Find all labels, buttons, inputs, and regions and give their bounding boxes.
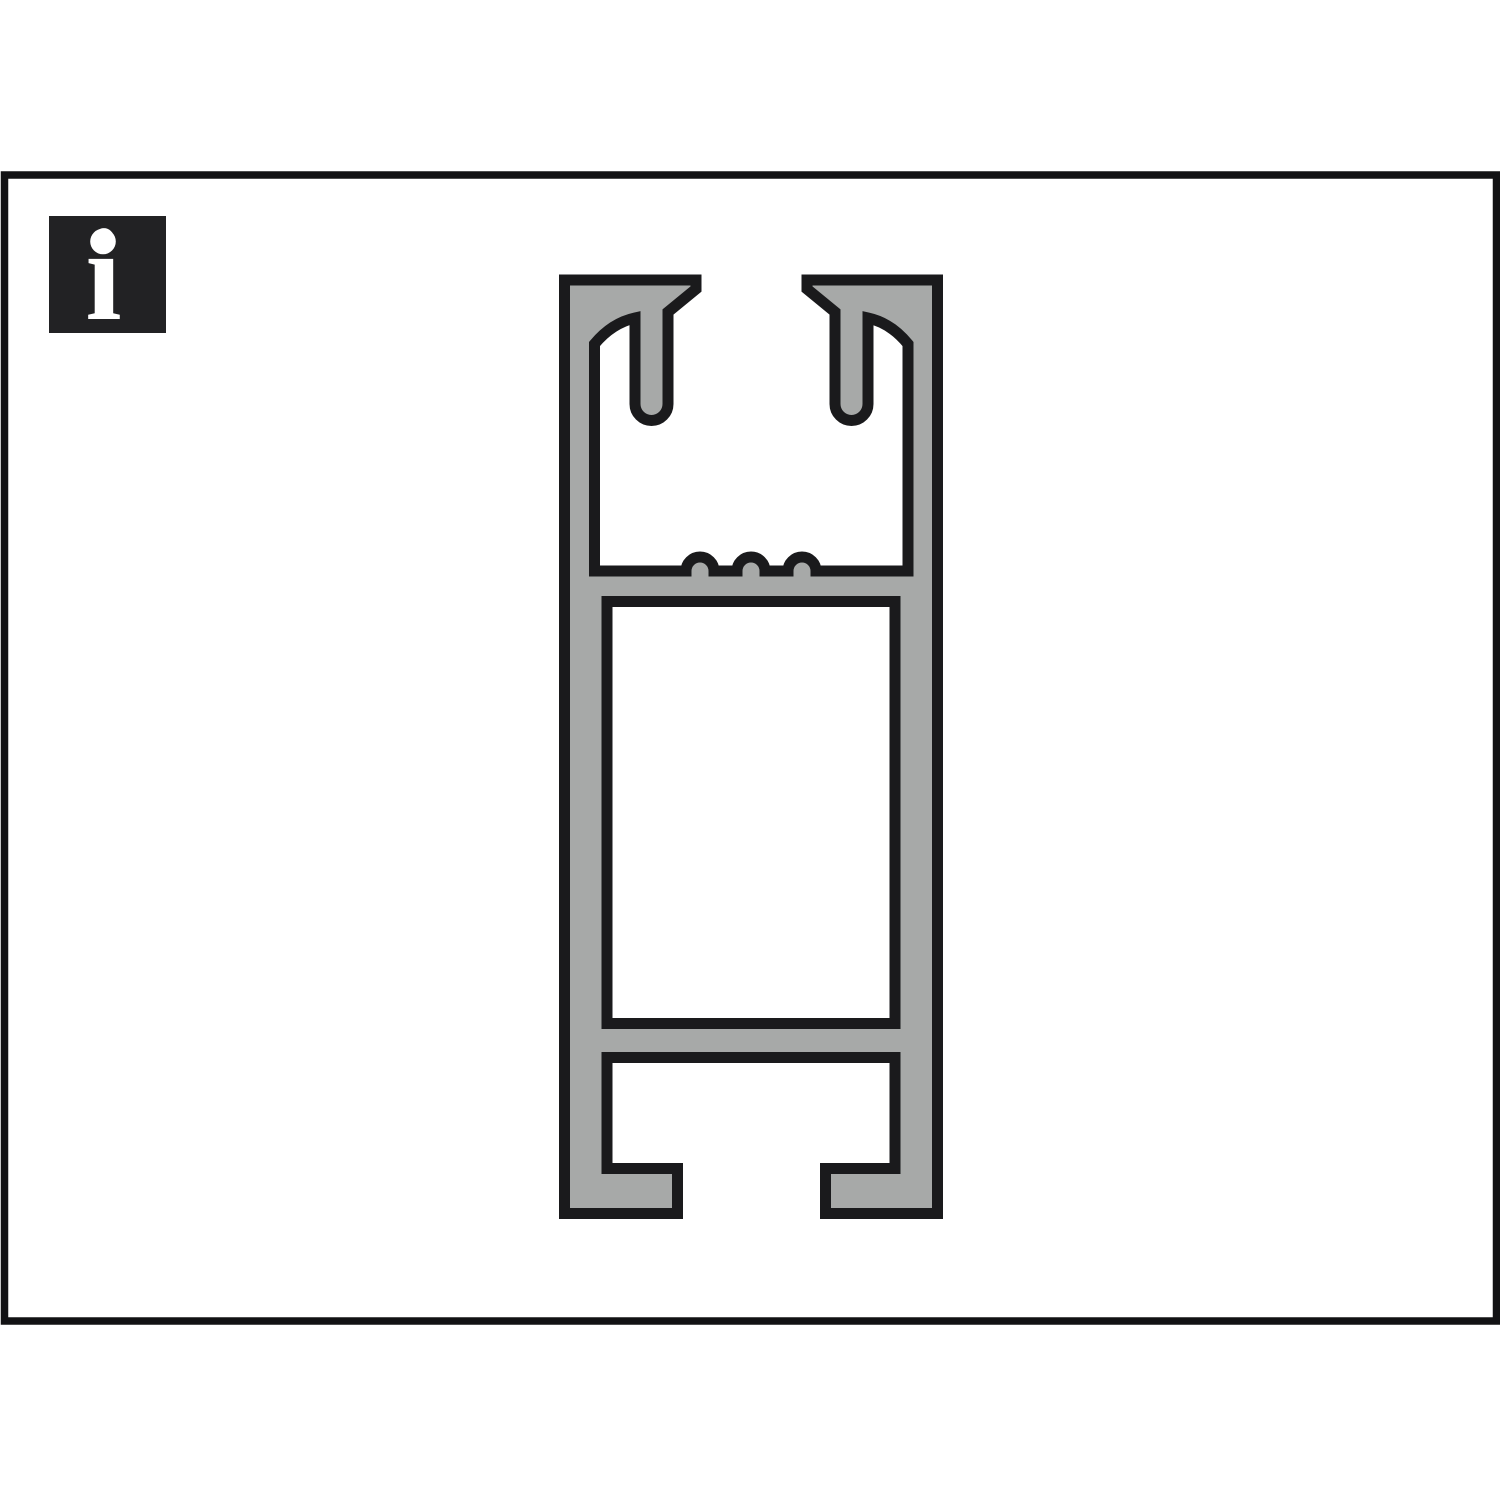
svg-text:i: i — [85, 203, 121, 348]
